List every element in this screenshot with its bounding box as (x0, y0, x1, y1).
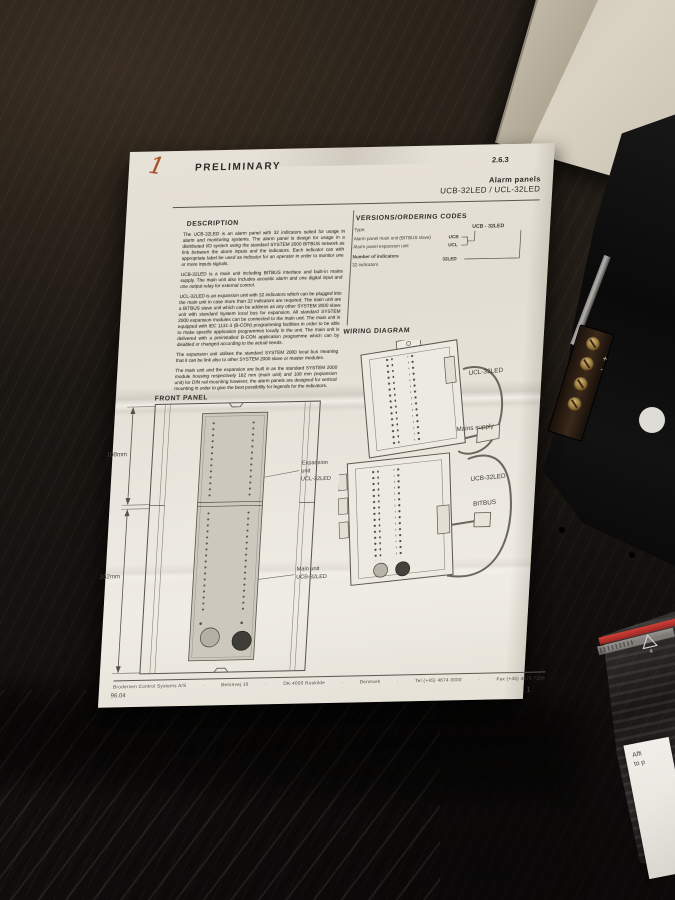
status-preliminary: PRELIMINARY (195, 161, 282, 174)
footer-separator: · (478, 677, 480, 682)
header-rule (173, 199, 540, 208)
recycle-code: 4 (649, 649, 653, 656)
terminal-screw (578, 355, 595, 372)
expansion-label-line: unit (301, 468, 311, 474)
description-text: The UCB-32LED is an alarm panel with 32 … (174, 229, 345, 397)
section-number: 2.6.3 (492, 155, 509, 164)
ordering-bracket-lines (351, 221, 540, 277)
front-panel-drawing: 108mm 162mm Expansion unit UCL-32LED (92, 398, 398, 676)
datasheet-page: 1 PRELIMINARY 2.6.3 Alarm panels UCB-32L… (98, 143, 555, 708)
description-paragraph: The main unit and the expansion are buil… (174, 365, 337, 392)
screw-hole (557, 525, 567, 535)
dimension-expansion: 108mm (106, 451, 127, 458)
terminal-screw (572, 375, 589, 392)
header-right-block: Alarm panels UCB-32LED / UCL-32LED (357, 174, 541, 197)
expansion-label-line: UCL-32LED (301, 476, 331, 483)
ordering-codes-block: Type: Alarm panel main unit (BITBUS slav… (351, 221, 540, 277)
footer-separator: · (265, 681, 267, 686)
wiring-title: WIRING DIAGRAM (343, 327, 410, 335)
dimension-main: 162mm (99, 573, 120, 580)
wiring-label-ucb: UCB-32LED (470, 473, 506, 483)
footer-company: Brodersen Control Systems A/S (113, 683, 187, 690)
footer-fax: Fax (+45) 4675 7336 (496, 675, 545, 681)
wiring-label-bitbus: BITBUS (473, 499, 496, 508)
terminal-screw (566, 395, 583, 412)
footer-address: Betonvej 10 (221, 682, 249, 688)
plastic-bag: 4 Affi to p (592, 606, 675, 876)
ordering-title: VERSIONS/ORDERING CODES (356, 213, 468, 222)
description-paragraph: UCB-32LED is a main unit including BITBU… (180, 269, 343, 290)
footer-separator: · (203, 683, 205, 688)
page-number: 1 (526, 687, 530, 694)
footer-city: DK-4000 Roskilde (283, 680, 325, 686)
description-paragraph: UCL-32LED is an expansion unit with 32 i… (177, 291, 342, 349)
wiring-label-ucl: UCL-32LED (469, 367, 504, 377)
black-device: + - (535, 105, 675, 580)
description-title: DESCRIPTION (187, 220, 239, 228)
photo-scene: + - 4 Affi to p 1 PRELIMINARY (0, 0, 675, 900)
footer-tel: Tel (+45) 4674 0000 (415, 677, 462, 683)
front-panel-title: FRONT PANEL (154, 394, 208, 402)
bitbus-connector (474, 513, 491, 527)
main-label-line: UCB-32LED (296, 574, 327, 581)
footer-country: Denmark (360, 679, 381, 684)
footer-separator: · (397, 678, 399, 683)
main-label-line: Main unit (296, 566, 319, 572)
description-paragraph: The expansion unit utilises the standard… (176, 349, 339, 364)
footer-separator: · (341, 680, 343, 685)
expansion-label-line: Expansion (302, 460, 328, 467)
terminal-screw (584, 335, 601, 352)
screw-hole (627, 550, 637, 560)
round-sticker (639, 407, 665, 433)
issue-date: 96.04 (110, 693, 125, 699)
footer-address-line: Brodersen Control Systems A/S · Betonvej… (113, 675, 545, 689)
description-paragraph: The UCB-32LED is an alarm panel with 32 … (181, 229, 345, 269)
